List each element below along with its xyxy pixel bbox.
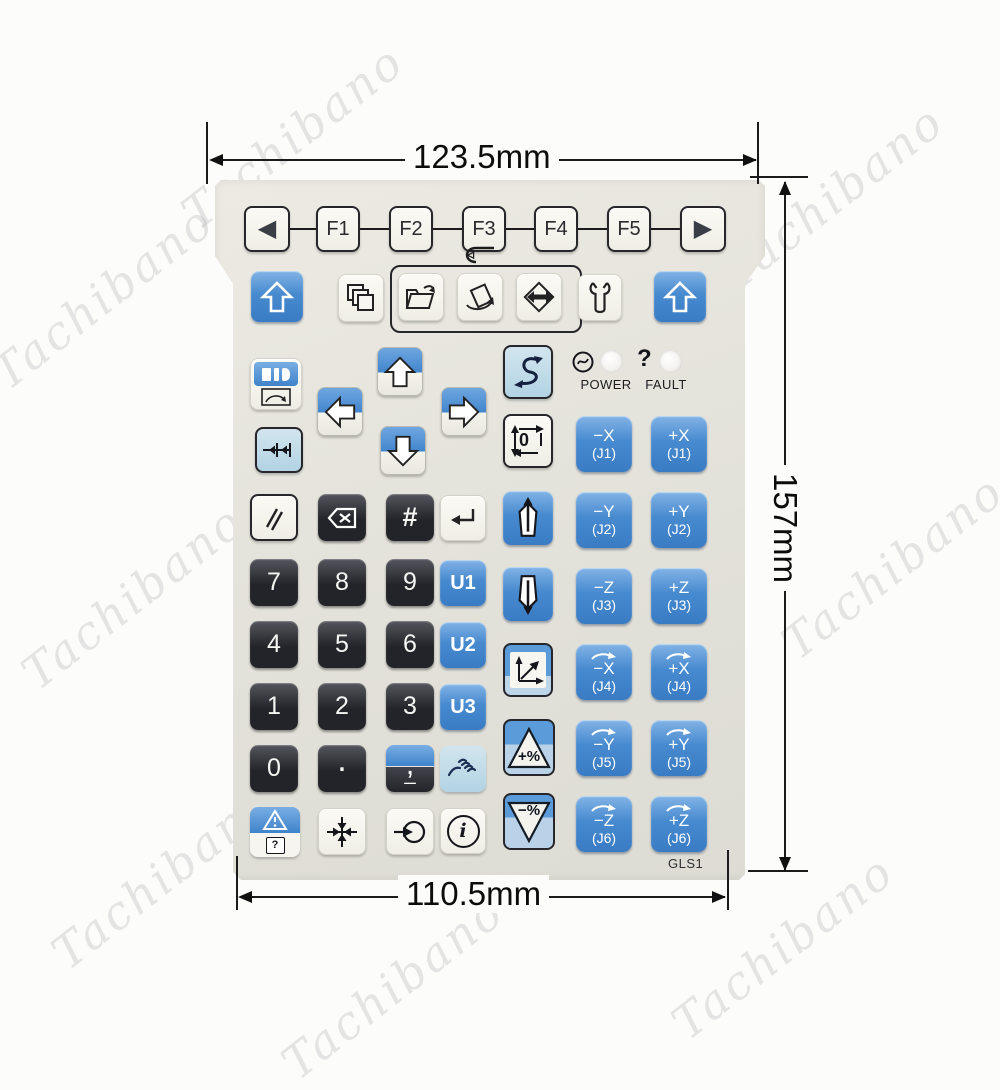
comma-underscore-key[interactable]: , _ [386,745,434,792]
fault-led [659,350,682,373]
down-arrow-icon [386,433,420,469]
jog-shield-up-icon [512,497,544,539]
loop-return-icon [392,817,428,847]
double-slash-key[interactable] [250,494,298,541]
dim-arrow-right2 [712,891,726,903]
u1-label: U1 [450,572,476,595]
dim-ext-right-top [750,176,808,178]
jog-sub: (J6) [592,831,616,846]
jog-speed-up-key[interactable] [503,491,553,545]
jog-key-plus-x-j4[interactable]: +X(J4) [651,644,707,700]
f1-key[interactable]: F1 [316,206,360,252]
loop-back-arrow-icon [458,242,504,268]
right-arrow-icon [447,394,481,430]
enter-key[interactable] [440,495,486,541]
jog-label: −X [593,427,614,446]
jog-label: −Y [593,503,614,522]
display-select-icon [254,362,298,386]
jog-label: −Z [594,812,614,831]
left-triangle-icon: ◀ [258,217,276,241]
power-led [600,350,623,373]
backspace-icon [326,506,358,530]
jog-sub: (J3) [667,598,691,613]
speed-minus-key[interactable]: −% [503,793,555,850]
jog-sub: (J3) [592,598,616,613]
fault-question-icon: ? [637,345,652,373]
jog-key-plus-z-j6[interactable]: +Z(J6) [651,796,707,852]
dim-arrow-right [743,154,757,166]
jog-key-minus-x-j4[interactable]: −X(J4) [576,644,632,700]
info-icon: i [447,815,480,848]
jog-sub: (J6) [667,831,691,846]
dim-ext-top-left [206,122,208,184]
s-curve-jog-icon [510,352,546,392]
underscore-label: _ [404,772,415,776]
jog-key-minus-y-j2[interactable]: −Y(J2) [576,492,632,548]
page-right-key[interactable]: ▶ [680,206,726,252]
step-forward-icon [262,440,296,460]
num-label: 7 [267,568,281,597]
num-label: 4 [267,630,281,659]
f4-key[interactable]: F4 [534,206,578,252]
dim-arrow-up [779,181,791,195]
jog-label: +Y [668,503,689,522]
jog-label: +X [668,427,689,446]
axes-icon [512,654,544,686]
num-1-key[interactable]: 1 [250,683,298,730]
jog-key-plus-z-j3[interactable]: +Z(J3) [651,568,707,624]
hash-label: # [402,502,417,533]
return-loop-key[interactable] [386,808,434,855]
f3-label: F3 [472,218,495,241]
jog-sub: (J4) [667,679,691,694]
speed-plus-key[interactable]: +% [503,719,555,776]
num-5-key[interactable]: 5 [318,621,366,668]
watermark-text: Tachibano [272,884,515,1090]
jog-sub: (J4) [592,679,616,694]
jog-label: −Z [594,579,614,598]
num-label: 2 [335,692,349,721]
right-triangle-icon: ▶ [694,217,712,241]
u3-key[interactable]: U3 [440,684,486,730]
dim-right-label: 157mm [766,465,804,591]
enter-icon [448,505,478,531]
u2-label: U2 [450,634,476,657]
f5-key[interactable]: F5 [607,206,651,252]
jog-key-minus-z-j3[interactable]: −Z(J3) [576,568,632,624]
f2-label: F2 [399,218,422,241]
jog-sub: (J2) [667,522,691,537]
meter-icon [261,388,291,406]
num-label: 0 [267,754,281,783]
power-circle-icon [571,350,595,374]
cursor-left-key[interactable] [317,387,363,436]
shift-up-right-key[interactable] [654,271,706,322]
watermark-text: Tachibano [772,464,1000,670]
hand-touch-icon [446,754,480,784]
step-forward-key[interactable] [255,427,303,473]
jog-label: +X [668,660,689,679]
jog-speed-down-key[interactable] [503,567,553,621]
display-select-key[interactable] [250,358,302,410]
jog-sub: (J2) [592,522,616,537]
help-half: ? [250,833,300,857]
num-label: 5 [335,630,349,659]
info-key[interactable]: i [440,808,486,854]
u2-key[interactable]: U2 [440,622,486,668]
warning-half [250,807,300,833]
warning-help-key[interactable]: ? [250,807,300,857]
num-label: 9 [403,568,417,597]
center-position-key[interactable] [318,808,366,855]
jog-label: −X [593,660,614,679]
cursor-up-key[interactable] [377,347,423,396]
decimal-point-key[interactable]: . [318,745,366,792]
jog-sub: (J1) [667,446,691,461]
setup-key[interactable] [578,274,622,321]
cursor-right-key[interactable] [441,387,487,436]
jog-label: −Y [593,736,614,755]
watermark-text: Tachibano [0,194,224,400]
jog-sub: (J1) [592,446,616,461]
double-slash-icon [259,503,289,533]
io-transfer-key[interactable] [516,273,562,321]
left-arrow-icon [323,394,357,430]
shift-up-icon [259,279,295,315]
dim-ext-top-right [757,122,759,184]
u1-key[interactable]: U1 [440,560,486,606]
cycle-start-key[interactable]: 0 [503,414,553,468]
jog-label: +Y [668,736,689,755]
jog-key-plus-y-j2[interactable]: +Y(J2) [651,492,707,548]
jog-key-minus-z-j6[interactable]: −Z(J6) [576,796,632,852]
cursor-down-key[interactable] [380,426,426,475]
open-folder-icon [404,282,438,312]
hand-guide-key[interactable] [440,746,486,792]
jog-label: +Z [669,812,689,831]
jog-label: +Z [669,579,689,598]
jog-key-plus-y-j5[interactable]: +Y(J5) [651,720,707,776]
watermark-text: Tachibano [12,494,255,700]
minus-percent-label: −% [505,802,553,819]
io-transfer-icon [522,280,556,314]
backspace-key[interactable] [318,494,366,541]
num-0-key[interactable]: 0 [250,745,298,792]
f1-label: F1 [326,218,349,241]
fault-label: FAULT [640,377,692,392]
pages-icon [345,282,377,314]
jog-shield-down-icon [512,573,544,615]
model-label: GLS1 [668,856,703,871]
dim-ext-right-bottom [748,870,808,872]
num-label: 3 [403,692,417,721]
weave-jog-key[interactable] [503,345,553,399]
num-6-key[interactable]: 6 [386,621,434,668]
hash-key[interactable]: # [386,494,434,541]
coordinate-system-key[interactable] [503,643,553,697]
num-9-key[interactable]: 9 [386,559,434,606]
help-box-icon: ? [266,837,285,854]
shift-up-icon [662,279,698,315]
up-arrow-icon [383,354,417,390]
f5-label: F5 [617,218,640,241]
export-program-key[interactable] [457,273,503,321]
f2-key[interactable]: F2 [389,206,433,252]
dim-arrow-down [779,857,791,871]
jog-key-plus-x-j1[interactable]: +X(J1) [651,416,707,472]
dim-top-label: 123.5mm [405,138,559,176]
jog-key-minus-y-j5[interactable]: −Y(J5) [576,720,632,776]
open-program-key[interactable] [398,273,444,321]
shift-up-left-key[interactable] [251,271,303,322]
axes-icon-plate [510,652,546,688]
center-crosshair-icon [324,814,360,850]
page-left-key[interactable]: ◀ [244,206,290,252]
dim-arrow-left2 [238,891,252,903]
u3-label: U3 [450,696,476,719]
pages-key[interactable] [338,274,384,322]
dim-ext-bottom-right [727,850,729,910]
plus-percent-label: +% [505,748,553,765]
dim-arrow-left [209,154,223,166]
jog-key-minus-x-j1[interactable]: −X(J1) [576,416,632,472]
num-8-key[interactable]: 8 [318,559,366,606]
jog-sub: (J5) [667,755,691,770]
num-2-key[interactable]: 2 [318,683,366,730]
wrench-icon [589,279,611,317]
cycle-zero-label: 0 [519,430,529,451]
num-label: 1 [267,692,281,721]
power-label: POWER [574,377,638,392]
num-3-key[interactable]: 3 [386,683,434,730]
export-program-icon [463,281,497,313]
num-label: 6 [403,630,417,659]
dim-bottom-label: 110.5mm [398,875,549,913]
dot-label: . [337,741,346,780]
jog-sub: (J5) [592,755,616,770]
num-4-key[interactable]: 4 [250,621,298,668]
num-label: 8 [335,568,349,597]
warning-triangle-icon [262,809,288,831]
num-7-key[interactable]: 7 [250,559,298,606]
underscore-half: _ [386,766,434,792]
f4-label: F4 [544,218,567,241]
